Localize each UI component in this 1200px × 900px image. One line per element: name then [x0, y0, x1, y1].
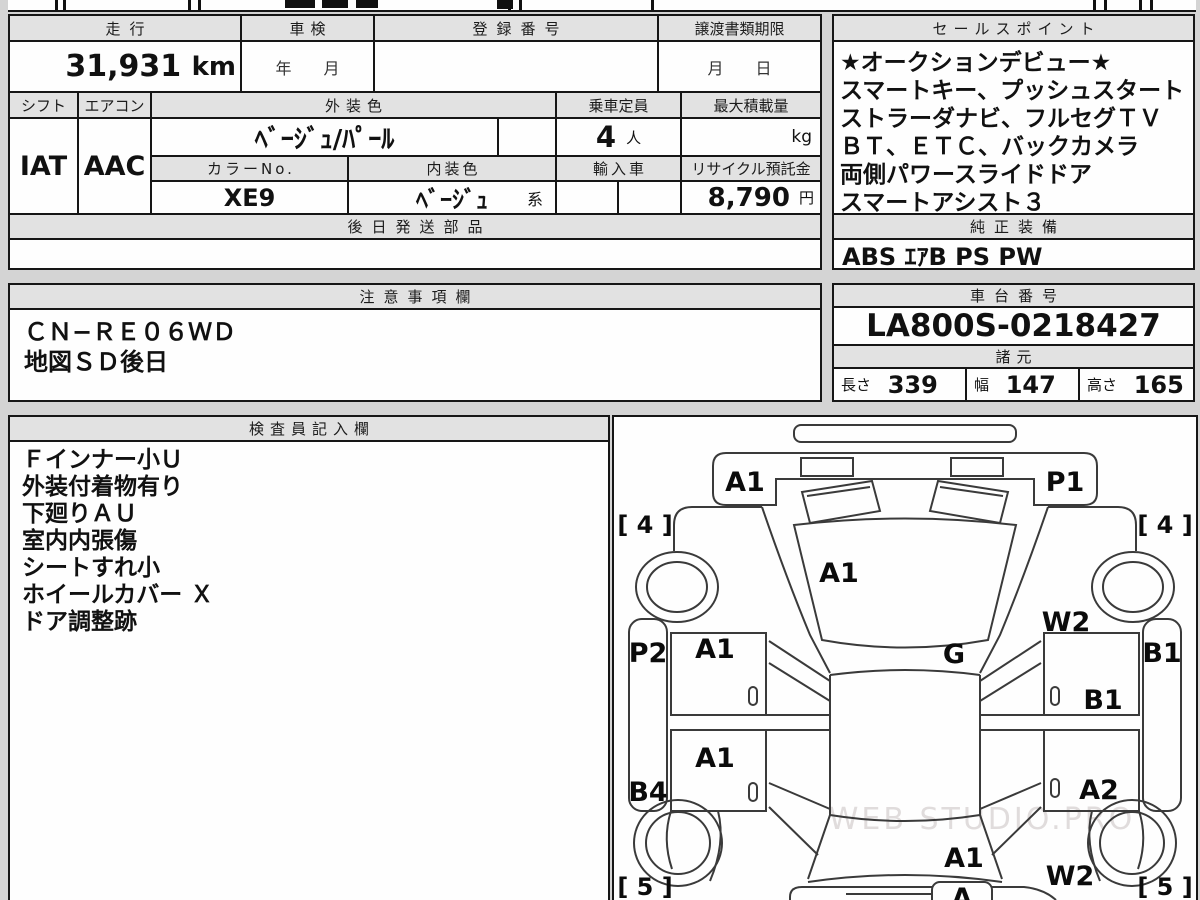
aircon-value: AAC [77, 117, 152, 215]
registration-value [373, 40, 659, 93]
damage-code-front-left-door: A1 [695, 634, 735, 665]
capacity-header: 乗車定員 [555, 91, 682, 119]
damage-code-rear-window: A1 [944, 843, 984, 874]
payload-header: 最大積載量 [680, 91, 822, 119]
recycle-header: リサイクル預託金 [680, 155, 822, 182]
door-handle [749, 783, 757, 801]
damage-diagram-box: WEB STUDIO.PRO [612, 415, 1198, 900]
chassis-header: 車台番号 [832, 283, 1195, 308]
chassis-value: LA800S-0218427 [832, 306, 1195, 346]
aircon-header: エアコン [77, 91, 152, 119]
import-value-right [617, 180, 682, 215]
damage-code-left-rocker-front: P2 [629, 638, 668, 669]
sales-point-line: ストラーダナビ、フルセグＴＶ [840, 105, 1183, 133]
registration-header: 登録番号 [373, 14, 659, 42]
transfer-doc-value: 月 日 [657, 40, 822, 93]
mileage-value: 31,931 km [8, 40, 242, 93]
door-handle [749, 687, 757, 705]
inspector-line: シートすれ小 [22, 555, 598, 582]
door-handle [1051, 687, 1059, 705]
damage-code-right-rocker: B1 [1142, 638, 1181, 669]
headlight-left-shape [801, 458, 853, 476]
inspector-line: ホイールカバー Ｘ [22, 582, 598, 609]
inspector-line: 外装付着物有り [22, 474, 598, 501]
auction-sheet-page: 走行 車検 登録番号 譲渡書類期限 31,931 km 年 月 月 日 シフト … [0, 0, 1200, 900]
sales-point-line: ＢＴ、ＥＴＣ、バックカメラ [840, 133, 1183, 161]
payload-value: kg [680, 117, 822, 157]
exterior-color-value: ﾍﾞｰｼﾞｭ/ﾊﾟｰﾙ [150, 117, 499, 157]
notes-header: 注意事項欄 [8, 283, 822, 310]
tire-marker-front-right: [ 4 ] [1137, 511, 1192, 539]
car-top-view-diagram: WEB STUDIO.PRO [614, 417, 1196, 900]
front-panel-shape [713, 453, 1097, 505]
capacity-unit: 人 [626, 127, 641, 148]
equipment-value: ABS ｴｱB PS PW [832, 238, 1195, 270]
color-no-value: XE9 [150, 180, 349, 215]
sales-point-line: 両側パワースライドドア [840, 161, 1183, 189]
inspector-line: ドア調整跡 [22, 609, 598, 636]
tire-marker-rear-left: [ 5 ] [617, 873, 672, 900]
interior-color-header: 内装色 [347, 155, 557, 182]
sales-point-line: スマートキー、プッシュスタート [840, 77, 1183, 105]
sales-point-line: ★オークションデビュー★ [840, 49, 1183, 77]
inspector-line: Ｆインナー小Ｕ [22, 447, 598, 474]
spec-height: 高さ 165 [1078, 367, 1195, 402]
sales-point-header: セールスポイント [832, 14, 1195, 42]
damage-code-left-rocker-rear: B4 [628, 777, 667, 808]
damage-code-rear-left-door: A1 [695, 743, 735, 774]
inspector-line: 下廻りＡＵ [22, 501, 598, 528]
recycle-unit: 円 [799, 187, 814, 208]
spec-height-label: 高さ [1087, 374, 1117, 395]
spec-width: 幅 147 [965, 367, 1080, 402]
mileage-header: 走行 [8, 14, 242, 42]
cutoff-row-fragment [8, 0, 1196, 12]
inspector-header: 検査員記入欄 [8, 415, 610, 442]
recycle-value: 8,790 円 [680, 180, 822, 215]
front-bumper-shape [794, 425, 1016, 442]
spec-length-label: 長さ [841, 374, 871, 395]
spec-length: 長さ 339 [832, 367, 967, 402]
later-parts-header: 後日発送部品 [8, 213, 822, 240]
damage-code-front-right-door: B1 [1083, 685, 1122, 716]
mileage-unit: km [192, 52, 236, 82]
roof-shape [830, 670, 980, 675]
interior-color-value: ﾍﾞｰｼﾞｭ 系 [347, 180, 557, 215]
tire-marker-front-left: [ 4 ] [617, 511, 672, 539]
sales-point-content: ★オークションデビュー★ スマートキー、プッシュスタート ストラーダナビ、フルセ… [832, 40, 1195, 215]
inspector-line: 室内内張傷 [22, 528, 598, 555]
exterior-color-header: 外装色 [150, 91, 557, 119]
headlight-right-shape [951, 458, 1003, 476]
shift-value: IAT [8, 117, 79, 215]
inspector-content: Ｆインナー小Ｕ 外装付着物有り 下廻りＡＵ 室内内張傷 シートすれ小 ホイールカ… [8, 440, 610, 900]
later-parts-value [8, 238, 822, 270]
transfer-doc-header: 譲渡書類期限 [657, 14, 822, 42]
shaken-value: 年 月 [240, 40, 375, 93]
capacity-value: 4 人 [555, 117, 682, 157]
color-no-header: カラーNo. [150, 155, 349, 182]
damage-code-rear-right-door: A2 [1079, 775, 1119, 806]
import-header: 輸入車 [555, 155, 682, 182]
interior-color-suffix: 系 [527, 186, 543, 210]
damage-code-rear-hatch: A [952, 883, 973, 900]
damage-code-front-right-fender: W2 [1042, 607, 1091, 638]
specs-header: 諸元 [832, 344, 1195, 369]
spec-width-label: 幅 [974, 374, 989, 395]
damage-code-front-panel-left: A1 [725, 467, 765, 498]
damage-code-front-panel-right: P1 [1046, 467, 1085, 498]
damage-code-rear-right-fender: W2 [1046, 861, 1095, 892]
notes-line: ＣＮ−ＲＥ０６ＷＤ [24, 317, 810, 347]
damage-code-roof: G [943, 639, 965, 670]
notes-line: 地図ＳＤ後日 [24, 347, 810, 377]
damage-code-windshield: A1 [819, 558, 859, 589]
exterior-color-extra-cell [497, 117, 557, 157]
shaken-header: 車検 [240, 14, 375, 42]
shift-header: シフト [8, 91, 79, 119]
tire-marker-rear-right: [ 5 ] [1137, 873, 1192, 900]
door-handle [1051, 779, 1059, 797]
import-value-left [555, 180, 619, 215]
notes-content: ＣＮ−ＲＥ０６ＷＤ 地図ＳＤ後日 [8, 308, 822, 402]
